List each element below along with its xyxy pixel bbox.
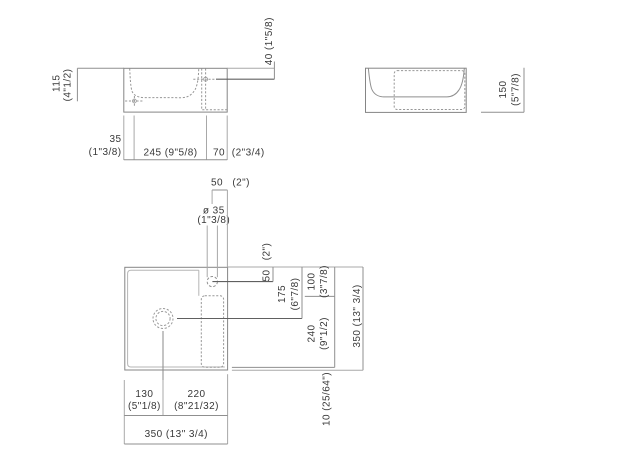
svg-text:245 (9"5/8): 245 (9"5/8) — [143, 148, 197, 159]
svg-text:40 (1"5/8): 40 (1"5/8) — [264, 17, 275, 65]
svg-text:130: 130 — [135, 389, 153, 400]
svg-text:240: 240 — [307, 324, 318, 342]
svg-text:(9"1/2): (9"1/2) — [319, 317, 330, 350]
svg-text:220: 220 — [187, 389, 205, 400]
svg-text:(5"1/8): (5"1/8) — [128, 401, 161, 412]
svg-text:150: 150 — [498, 80, 509, 98]
svg-text:(1"3/8): (1"3/8) — [197, 215, 230, 226]
svg-text:(2"): (2") — [232, 178, 250, 189]
svg-text:175: 175 — [277, 285, 288, 303]
svg-text:35: 35 — [109, 134, 121, 145]
svg-text:(1"3/8): (1"3/8) — [89, 147, 122, 158]
svg-text:(6"7/8): (6"7/8) — [290, 278, 301, 311]
svg-text:70: 70 — [213, 148, 225, 159]
svg-text:(2"): (2") — [261, 243, 272, 261]
svg-text:(4"1/2): (4"1/2) — [63, 69, 74, 102]
svg-text:(8"21/32): (8"21/32) — [174, 401, 219, 412]
svg-text:350 (13" 3/4): 350 (13" 3/4) — [145, 429, 208, 440]
svg-text:50: 50 — [211, 178, 223, 189]
svg-text:(5"7/8): (5"7/8) — [511, 73, 522, 106]
svg-text:100: 100 — [307, 272, 318, 290]
svg-text:(3"7/8): (3"7/8) — [319, 265, 330, 298]
svg-text:115: 115 — [52, 75, 63, 92]
svg-text:50: 50 — [261, 269, 272, 281]
svg-text:10 (25/64"): 10 (25/64") — [321, 372, 332, 426]
svg-text:(2"3/4): (2"3/4) — [232, 148, 265, 159]
svg-text:350 (13" 3/4): 350 (13" 3/4) — [352, 284, 363, 347]
